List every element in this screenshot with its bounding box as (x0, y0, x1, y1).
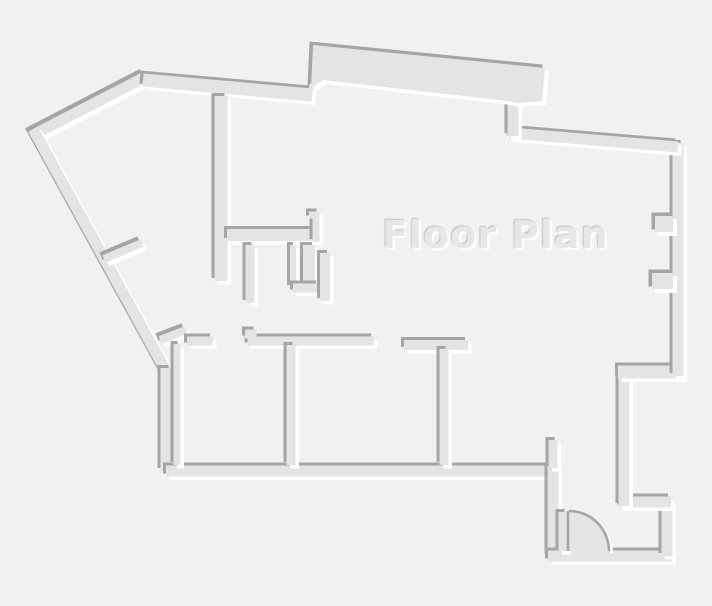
floor-plan-canvas: Floor Plan (0, 0, 712, 606)
outer-top-wall (140, 77, 316, 99)
interior-closet-stub-c (322, 250, 329, 305)
outer-right-wall (675, 140, 682, 380)
interior-entry-stub (550, 437, 557, 472)
interior-room-divider-2 (441, 346, 448, 469)
interior-room3-top-wall (401, 342, 472, 349)
interior-diagonal-stub-upper (101, 240, 146, 263)
outer-bottom-wall (163, 468, 557, 475)
interior-room1-left-wall (174, 341, 181, 469)
interior-upper-horizontal-wall (224, 232, 321, 239)
outer-left-wall (163, 365, 170, 475)
interior-closet-stub-a (247, 242, 254, 307)
outer-top-bump-slab (308, 42, 549, 107)
entry-door-swing (568, 511, 612, 554)
outer-left-upper-diagonal (28, 74, 149, 140)
outer-right-lower-wall (621, 365, 628, 510)
interior-room1-top-wall (184, 338, 217, 345)
outer-left-lower-diagonal (30, 126, 170, 375)
outer-top-right-slant (507, 130, 682, 151)
right-wall-pilaster-upper (652, 213, 677, 236)
interior-room2-top-wall (242, 331, 378, 345)
right-wall-pilaster-lower (649, 270, 677, 293)
floor-plan-title: Floor Plan (382, 213, 609, 257)
interior-top-shaft-wall (218, 93, 225, 285)
interior-room-divider-1 (288, 342, 295, 469)
interior-door-jamb (560, 509, 567, 555)
floor-plan-drawing (0, 0, 712, 606)
